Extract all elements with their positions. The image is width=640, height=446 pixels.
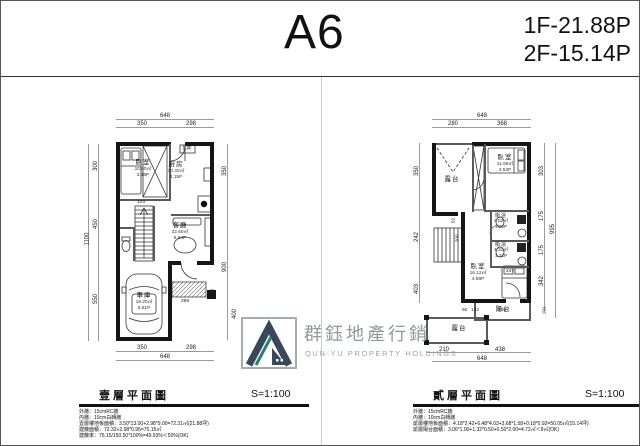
dimension-line — [432, 127, 531, 128]
dimension-line — [116, 351, 214, 352]
wall — [116, 337, 172, 341]
company-name-en: QUN-YU PROPERTY HOLDINGS — [305, 349, 457, 358]
dim-label: 303 — [539, 166, 545, 176]
center-divider — [321, 77, 322, 446]
dim-label: 648 — [155, 113, 175, 119]
dim-label: 350 — [414, 166, 420, 176]
caption-title-1f: 壹層平面圖 — [99, 387, 169, 403]
dim-label: 247 — [506, 270, 514, 275]
wall — [490, 266, 529, 268]
dimension-line — [116, 127, 214, 128]
wall — [426, 317, 488, 319]
dim-label: 298 — [181, 121, 201, 127]
wall — [484, 144, 486, 212]
dim-label: 298 — [181, 345, 201, 351]
wall — [472, 145, 474, 212]
room-label-kitchen: 廚房 10.40㎡ 3.15P — [161, 161, 191, 181]
dim-label: 400 — [232, 309, 238, 319]
unit-areas: 1F-21.88P 2F-15.14P — [524, 11, 631, 67]
dim-label: 101 — [544, 306, 549, 314]
dim-label: 900 — [222, 262, 228, 272]
dimension-line — [98, 144, 99, 341]
caption-scale-2f: S=1:100 — [585, 388, 624, 400]
caption-title-2f: 貳層平面圖 — [433, 387, 503, 403]
area-1f: 1F-21.88P — [524, 11, 631, 39]
dim-label: 175 — [539, 211, 545, 221]
caption-2f: 貳層平面圖 S=1:100 外牆：15cmRC牆 內牆：10cm白磚牆 貳層樓地… — [413, 387, 640, 433]
room-label-terrace-bottom: 露台 — [444, 325, 474, 333]
room-label-terrace-top: 露台 — [437, 176, 467, 184]
room-label-bath1: 衛浴 4.02㎡ 1.22P — [486, 213, 516, 231]
wall — [472, 142, 531, 146]
dim-label: 368 — [492, 121, 512, 127]
post — [484, 340, 489, 345]
area-2f: 2F-15.14P — [524, 39, 631, 67]
wall — [486, 210, 529, 212]
dim-label: 132 — [471, 309, 479, 314]
dim-label: 92 — [452, 218, 457, 223]
wall — [529, 303, 531, 321]
wall — [461, 299, 506, 303]
caption-rule — [413, 404, 640, 407]
caption-1f: 壹層平面圖 S=1:100 外牆：15cmRC牆 內牆：10cm白磚牆 壹層樓地… — [79, 387, 317, 439]
room-label-garage: 車庫 19.20㎡ 5.81P — [129, 292, 159, 312]
wall — [432, 212, 458, 216]
dim-label: 175 — [539, 245, 545, 255]
wall — [120, 199, 171, 201]
gas-label: 瓦斯 — [182, 147, 192, 152]
wall — [527, 142, 531, 303]
dimension-line — [116, 360, 214, 361]
post — [484, 315, 489, 320]
wall — [171, 214, 210, 216]
room-label-living: 客廳 22.60㎡ 6.84P — [165, 222, 195, 242]
dim-label: 648 — [155, 354, 175, 360]
note-line: 貳層陽台面積：3.06*1.00+1.32*0.50+0.50*2.00=4.7… — [413, 427, 640, 433]
dim-label: 242 — [414, 232, 420, 242]
dim-label: 103 — [137, 201, 145, 206]
room-label-bedroom: 臥室 10.50㎡ 3.18P — [128, 159, 158, 179]
dim-label: 300 — [93, 161, 99, 171]
wall — [116, 142, 171, 146]
dim-label: 648 — [472, 356, 492, 362]
dim-label: 298 — [181, 300, 189, 305]
caption-notes-2f: 外牆：15cmRC牆 內牆：10cm白磚牆 貳層樓地板面積：4.18*2.42+… — [413, 409, 640, 433]
dim-label: 200 — [457, 234, 462, 242]
caption-notes-1f: 外牆：15cmRC牆 內牆：10cm白磚牆 壹層樓地板面積：3.50*13.00… — [79, 409, 317, 439]
dim-label: 403 — [414, 284, 420, 294]
company-name-zh: 群鈺地產行銷 — [304, 320, 430, 346]
wall — [432, 143, 474, 145]
dim-label: 306 — [498, 309, 506, 314]
wall — [474, 319, 531, 321]
wall — [116, 142, 120, 341]
dim-label: 1100 — [84, 233, 90, 246]
wall — [168, 261, 172, 341]
dim-label: 450 — [93, 219, 99, 229]
wall — [210, 142, 214, 265]
dim-label: 350 — [222, 166, 228, 176]
dim-label: 350 — [132, 121, 152, 127]
dim-label: 342 — [539, 276, 545, 286]
wall — [426, 342, 488, 344]
dim-label: 648 — [472, 113, 492, 119]
caption-scale-1f: S=1:100 — [251, 388, 290, 400]
floorplan-sheet: A6 1F-21.88P 2F-15.14P — [0, 0, 640, 446]
dim-label: 550 — [93, 294, 99, 304]
wall — [153, 206, 155, 261]
note-line: 建蔽率：75.15/150.50*100%=49.93%＜50%(OK) — [79, 433, 317, 439]
dim-label: 438 — [490, 347, 510, 353]
dim-label: 50 — [462, 309, 467, 314]
floorplan-2f: 露台 臥室 11.66㎡ 3.53P 衛浴 4.02㎡ 1.22P 衛浴 4.3… — [406, 106, 638, 406]
dimension-line — [116, 119, 214, 120]
room-label-bedroom-low: 臥室 16.12㎡ 4.88P — [463, 263, 493, 283]
wall — [197, 261, 214, 265]
dim-label: 280 — [443, 121, 463, 127]
caption-rule — [79, 404, 309, 407]
wall — [461, 212, 465, 303]
wall — [432, 143, 436, 216]
dim-label: 95 — [211, 289, 216, 294]
wall — [168, 261, 181, 265]
dim-label: 350 — [132, 345, 152, 351]
logo-mark-icon — [243, 319, 295, 367]
company-logo — [241, 317, 297, 369]
wall — [133, 229, 135, 261]
room-label-bedroom-top: 臥室 11.66㎡ 3.53P — [490, 154, 520, 174]
dimension-line — [432, 119, 531, 120]
unit-title: A6 — [284, 5, 345, 60]
room-label-bath2: 衛浴 4.32㎡ 1.31P — [486, 242, 516, 260]
dim-label: 995 — [550, 224, 556, 234]
